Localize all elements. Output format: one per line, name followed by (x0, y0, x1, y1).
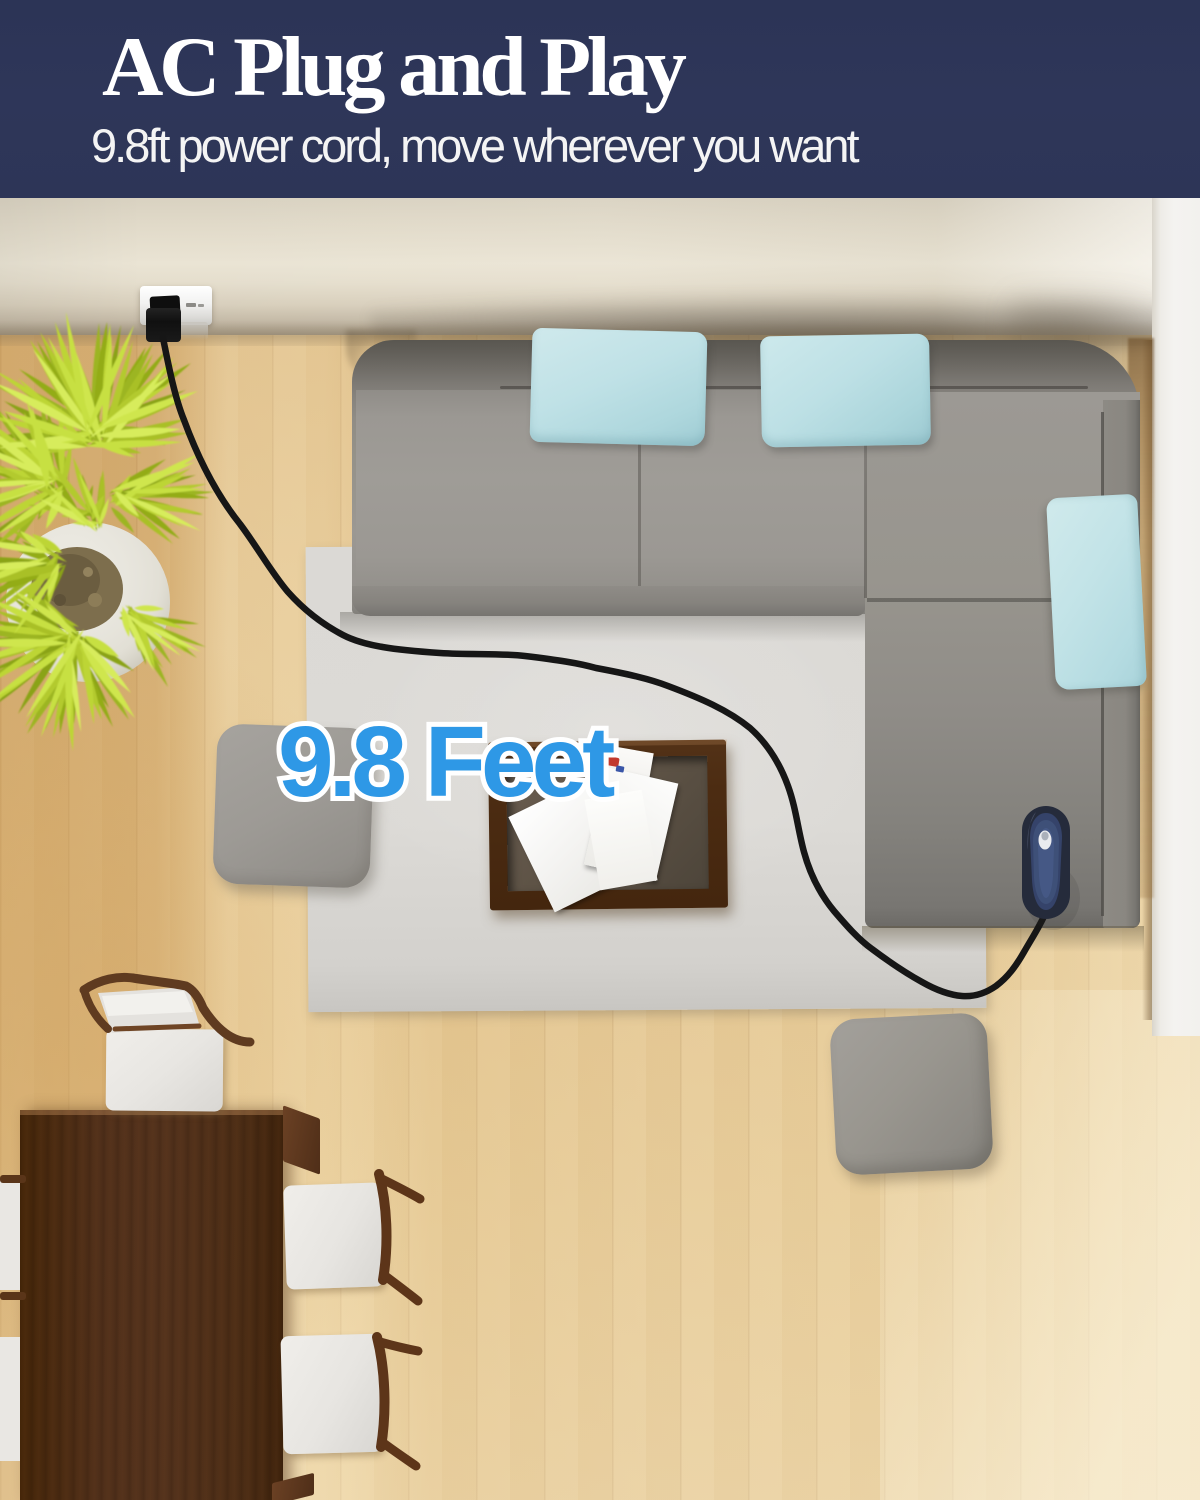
svg-text:9.8 Feet: 9.8 Feet (278, 706, 615, 818)
